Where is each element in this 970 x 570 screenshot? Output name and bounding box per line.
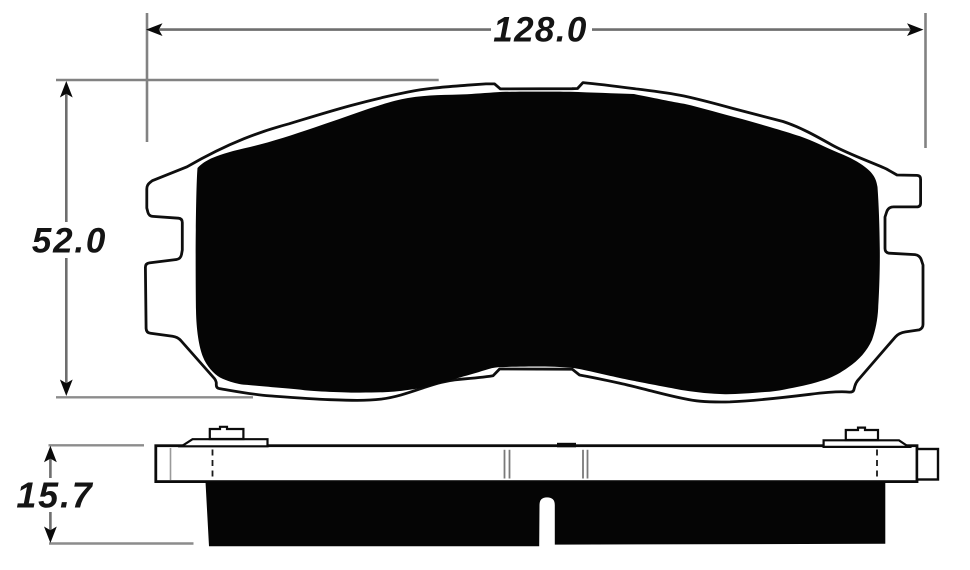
svg-text:52.0: 52.0: [32, 222, 107, 261]
svg-text:15.7: 15.7: [16, 474, 93, 515]
svg-text:128.0: 128.0: [493, 10, 588, 49]
